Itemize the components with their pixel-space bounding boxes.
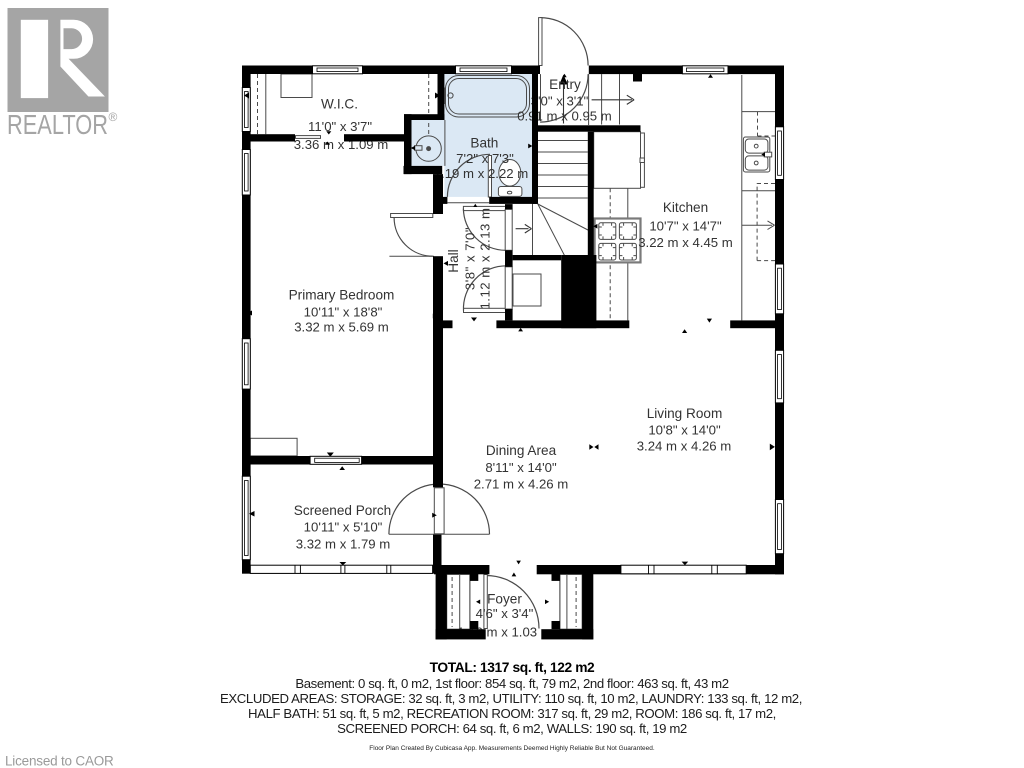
svg-text:7'2" x 7'3": 7'2" x 7'3" xyxy=(456,151,514,166)
svg-text:Foyer: Foyer xyxy=(487,591,522,606)
svg-text:1.12 m x 2.13 m: 1.12 m x 2.13 m xyxy=(478,207,493,309)
svg-text:HALF BATH: 51 sq. ft, 5 m2, RE: HALF BATH: 51 sq. ft, 5 m2, RECREATION R… xyxy=(248,706,776,721)
svg-text:10'11" x 5'10": 10'11" x 5'10" xyxy=(304,520,383,535)
svg-text:10'11" x 18'8": 10'11" x 18'8" xyxy=(304,304,383,319)
svg-text:Primary Bedroom: Primary Bedroom xyxy=(289,287,395,302)
svg-text:3.22 m x 4.45 m: 3.22 m x 4.45 m xyxy=(638,235,733,250)
svg-text:Kitchen: Kitchen xyxy=(663,200,708,215)
svg-text:SCREENED PORCH: 64 sq. ft, 6 m: SCREENED PORCH: 64 sq. ft, 6 m2, WALLS: … xyxy=(337,721,687,736)
svg-text:W.I.C.: W.I.C. xyxy=(321,97,358,112)
svg-text:11'0" x 3'7": 11'0" x 3'7" xyxy=(308,119,372,134)
svg-text:3'0" x 3'1": 3'0" x 3'1" xyxy=(531,94,589,109)
svg-text:Floor Plan Created By Cubicasa: Floor Plan Created By Cubicasa App. Meas… xyxy=(369,745,655,752)
svg-text:2.71 m x 4.26 m: 2.71 m x 4.26 m xyxy=(474,477,569,492)
svg-text:4'6" x 3'4": 4'6" x 3'4" xyxy=(476,606,534,621)
svg-text:Dining Area: Dining Area xyxy=(486,443,557,458)
svg-text:3.24 m x 4.26 m: 3.24 m x 4.26 m xyxy=(637,439,732,454)
svg-text:Basement: 0 sq. ft, 0 m2, 1st: Basement: 0 sq. ft, 0 m2, 1st floor: 854… xyxy=(295,676,728,691)
svg-text:2.19 m x 2.22 m: 2.19 m x 2.22 m xyxy=(434,166,529,181)
svg-text:Entry: Entry xyxy=(549,77,581,92)
svg-text:10'7" x 14'7": 10'7" x 14'7" xyxy=(649,219,722,234)
svg-text:EXCLUDED AREAS: STORAGE: 32 sq: EXCLUDED AREAS: STORAGE: 32 sq. ft, 3 m2… xyxy=(220,691,802,706)
svg-text:Living Room: Living Room xyxy=(647,406,723,421)
svg-text:Screened Porch: Screened Porch xyxy=(294,503,391,518)
svg-text:Bath: Bath xyxy=(470,135,498,150)
svg-text:REALTOR: REALTOR xyxy=(7,109,108,140)
svg-text:®: ® xyxy=(109,110,118,124)
svg-text:3.32 m x 1.79 m: 3.32 m x 1.79 m xyxy=(296,536,391,551)
svg-text:10'8" x 14'0": 10'8" x 14'0" xyxy=(648,422,721,437)
svg-text:Licensed to CAOR: Licensed to CAOR xyxy=(5,754,114,768)
svg-text:Hall: Hall xyxy=(446,249,461,272)
svg-text:TOTAL: 1317 sq. ft, 122 m2: TOTAL: 1317 sq. ft, 122 m2 xyxy=(430,660,595,675)
svg-text:3'8" x 7'0": 3'8" x 7'0" xyxy=(463,227,478,290)
svg-text:3.32 m x 5.69 m: 3.32 m x 5.69 m xyxy=(294,320,389,335)
svg-text:0.91 m x 0.95 m: 0.91 m x 0.95 m xyxy=(517,109,612,124)
svg-text:8'11" x 14'0": 8'11" x 14'0" xyxy=(485,460,557,475)
